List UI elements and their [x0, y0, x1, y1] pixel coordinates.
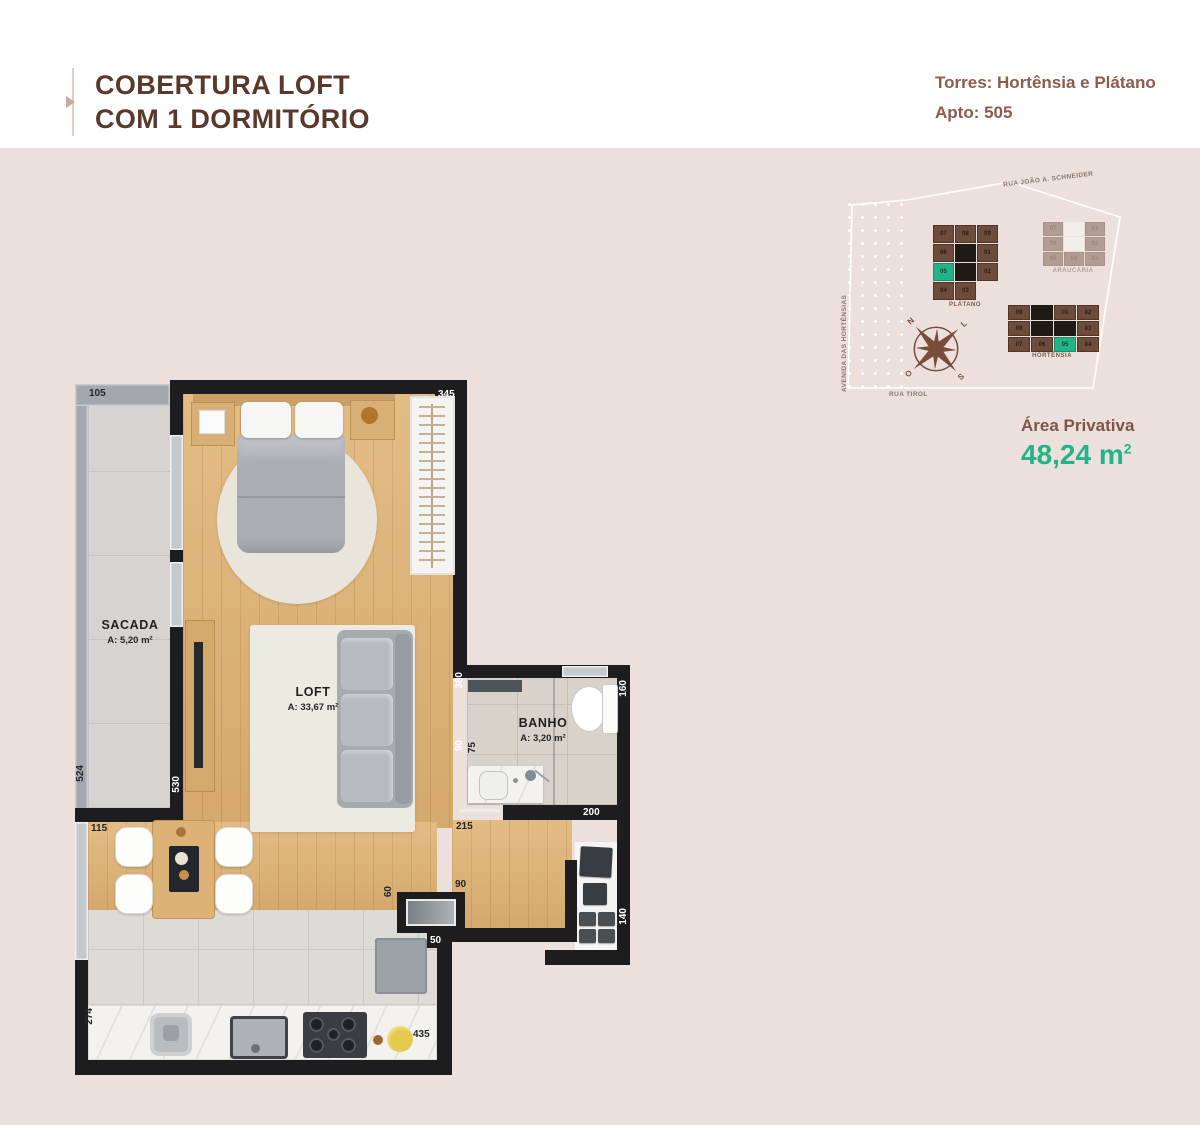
building-label-platano: PLÁTANO: [933, 302, 997, 308]
site-plan: RUA JOÃO A. SCHNEIDER AVENIDA DAS HORTÊN…: [835, 170, 1155, 415]
street-label-left: AVENIDA DAS HORTÊNSIAS: [841, 232, 848, 392]
entry-shelf-item-5: [579, 929, 596, 943]
fruit-bowl: [387, 1026, 413, 1052]
dim-60: 60: [384, 886, 394, 897]
dim-274: 274: [85, 1008, 95, 1025]
niche-interior: [406, 899, 456, 926]
private-area-value: 48,24 m2: [1021, 439, 1134, 471]
tv: [194, 642, 203, 768]
unit-05: 05: [1054, 337, 1076, 352]
private-area-block: Área Privativa 48,24 m2: [1021, 416, 1134, 471]
street-label-bottom: RUA TIROL: [889, 391, 928, 398]
unit-07: 07: [1008, 337, 1030, 352]
entry-shelf-item-1: [579, 846, 613, 878]
entry-shelf-item-4: [598, 912, 615, 926]
unit-08: 08: [1008, 321, 1030, 336]
dim-105: 105: [89, 389, 106, 399]
building-core: [1064, 222, 1084, 236]
unit-05: 05: [933, 263, 954, 281]
dim-380: 380: [455, 672, 465, 689]
bath-sink: [479, 771, 508, 800]
dining-chair-4: [215, 874, 253, 914]
building-core: [1031, 321, 1053, 336]
unit-09: 09: [1008, 305, 1030, 320]
burner-5: [327, 1028, 340, 1041]
unit-01: 01: [977, 244, 998, 262]
apto-label: Apto: 505: [935, 103, 1195, 123]
unit-04: 04: [1064, 252, 1084, 266]
dim-90-niche: 90: [455, 880, 466, 890]
bed-fold-line: [237, 496, 345, 498]
building-hortensia: 090102080307060504: [1008, 305, 1099, 352]
balcony-floor: [88, 406, 170, 808]
wall-kitchen-right: [437, 928, 452, 1075]
bath-window: [562, 666, 608, 677]
unit-03: 03: [1085, 252, 1105, 266]
room-area-loft: A: 33,67 m²: [253, 702, 373, 713]
fridge: [375, 938, 427, 994]
building-label-hortensia: HORTÊNSIA: [1008, 353, 1096, 359]
dim-50: 50: [430, 936, 441, 946]
sofa-backrest: [395, 634, 411, 804]
nightstand-book: [199, 410, 225, 434]
dim-200: 200: [583, 808, 600, 818]
dining-chair-2: [115, 874, 153, 914]
unit-04: 04: [1077, 337, 1099, 352]
private-area-number: 48,24 m: [1021, 439, 1124, 470]
unit-09: 09: [977, 225, 998, 243]
wall-bath-bottom: [503, 805, 630, 820]
header: COBERTURA LOFT COM 1 DORMITÓRIO Torres: …: [0, 0, 1200, 148]
dim-160: 160: [619, 680, 629, 697]
unit-03: 03: [1077, 321, 1099, 336]
dining-chair-3: [215, 827, 253, 867]
unit-06: 06: [1031, 337, 1053, 352]
building-core: [955, 263, 976, 281]
private-area-label: Área Privativa: [1021, 416, 1134, 436]
building-core: [1064, 237, 1084, 251]
corridor-floor: [452, 820, 572, 928]
unit-02: 02: [977, 263, 998, 281]
burner-3: [309, 1038, 324, 1053]
building-core: [955, 244, 976, 262]
toilet-tank: [602, 684, 618, 734]
unit-01: 01: [1085, 222, 1105, 236]
page-title-line2: COM 1 DORMITÓRIO: [95, 104, 595, 135]
dim-524: 524: [76, 765, 86, 782]
title-marker-arrow-icon: [66, 96, 75, 108]
unit-01: 01: [1054, 305, 1076, 320]
burner-4: [341, 1038, 356, 1053]
balcony-wall-left: [75, 384, 88, 822]
bed-pillow-left: [241, 402, 291, 438]
brochure-page: COBERTURA LOFT COM 1 DORMITÓRIO Torres: …: [0, 0, 1200, 1125]
dim-345: 345: [438, 390, 455, 400]
balcony-door-glass-2: [170, 562, 183, 627]
building-core: [1031, 305, 1053, 320]
floor-plan: 105 345 524 115 530 380 90 75 160 200 21…: [75, 380, 645, 1080]
wall-bedroom-top: [170, 380, 467, 394]
nightstand-tray: [361, 407, 378, 424]
burner-2: [341, 1017, 356, 1032]
room-area-banho: A: 3,20 m²: [503, 733, 583, 744]
kitchen-window-wall: [75, 822, 88, 960]
bath-faucet: [513, 778, 518, 783]
dim-75: 75: [468, 742, 478, 753]
balcony-door-glass-1: [170, 435, 183, 550]
building-label-araucaria: ARAUCÁRIA: [1043, 268, 1103, 274]
building-araucaria: 07010602050403: [1043, 222, 1105, 266]
dim-140: 140: [619, 908, 629, 925]
burner-1: [309, 1017, 324, 1032]
kitchen-faucet: [251, 1044, 260, 1053]
kitchen-sink-1-basin: [163, 1025, 179, 1041]
bed-pillow-right: [295, 402, 343, 438]
unit-02: 02: [1077, 305, 1099, 320]
room-area-sacada: A: 5,20 m²: [90, 635, 170, 646]
kitchen-sink-2: [230, 1016, 288, 1059]
unit-06: 06: [1043, 237, 1063, 251]
room-label-loft: LOFT: [253, 685, 373, 699]
unit-02: 02: [1085, 237, 1105, 251]
unit-04: 04: [933, 282, 954, 300]
towers-label: Torres: Hortênsia e Plátano: [935, 73, 1195, 93]
kitchen-decor: [373, 1035, 383, 1045]
sofa-cushion-1: [341, 638, 393, 690]
dim-90-wall: 90: [455, 740, 465, 751]
bed-duvet: [237, 435, 345, 553]
table-vase: [176, 827, 186, 837]
wall-corridor-bottom: [452, 928, 575, 942]
dim-115: 115: [91, 824, 107, 834]
unit-08: 08: [955, 225, 976, 243]
entry-shelf-item-6: [598, 929, 615, 943]
wall-entry-bottom: [545, 950, 630, 965]
unit-03: 03: [955, 282, 976, 300]
unit-05: 05: [1043, 252, 1063, 266]
sofa-cushion-3: [341, 750, 393, 802]
tray-plate-1: [175, 852, 188, 865]
bath-door-leaf: [459, 809, 501, 812]
dim-435: 435: [413, 1030, 430, 1040]
building-core: [1054, 321, 1076, 336]
entry-shelf-item-3: [579, 912, 596, 926]
unit-07: 07: [1043, 222, 1063, 236]
dining-chair-1: [115, 827, 153, 867]
room-label-banho: BANHO: [503, 716, 583, 730]
tray-plate-2: [179, 870, 189, 880]
building-platano: 070809060105020403: [933, 225, 998, 300]
room-label-sacada: SACADA: [90, 618, 170, 632]
dim-215: 215: [456, 822, 473, 832]
dim-530: 530: [172, 776, 182, 793]
wall-kitchen-bottom: [75, 1060, 452, 1075]
entry-shelf-item-2: [583, 883, 607, 905]
bath-shelf: [468, 680, 522, 692]
wall-bedroom-right: [453, 380, 467, 678]
unit-06: 06: [933, 244, 954, 262]
closet-hangers: [419, 404, 445, 568]
unit-07: 07: [933, 225, 954, 243]
private-area-sup: 2: [1124, 441, 1132, 457]
page-title-line1: COBERTURA LOFT: [95, 70, 595, 101]
